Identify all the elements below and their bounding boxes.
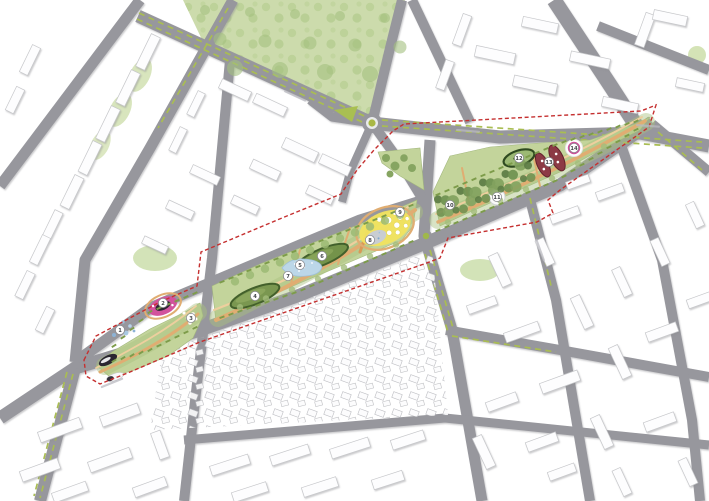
building <box>549 206 580 225</box>
tree <box>511 181 522 192</box>
building <box>29 235 50 266</box>
feature-marker: 14 <box>569 143 578 152</box>
building <box>643 412 676 432</box>
tree <box>351 228 359 236</box>
svg-text:4: 4 <box>253 294 257 300</box>
tree <box>408 164 416 172</box>
building <box>485 392 518 412</box>
svg-text:12: 12 <box>515 156 523 162</box>
svg-text:9: 9 <box>398 210 402 216</box>
building <box>60 175 84 210</box>
hedge <box>111 344 116 348</box>
park-tree <box>290 9 300 19</box>
feature-marker: 6 <box>317 251 326 260</box>
feature-marker: 12 <box>514 153 523 162</box>
building <box>51 481 88 501</box>
building <box>652 10 687 27</box>
masterplan-canvas: 1234567891011121314 <box>0 0 709 501</box>
building <box>570 294 593 329</box>
feature-marker: 3 <box>186 313 195 322</box>
building <box>685 201 704 228</box>
svg-text:11: 11 <box>493 195 501 201</box>
park-tree <box>362 66 378 82</box>
building <box>329 437 370 459</box>
feature-marker: 4 <box>250 291 259 300</box>
feature-marker: 1 <box>115 325 124 334</box>
building <box>521 16 558 33</box>
tree <box>482 194 491 203</box>
feature-marker: 2 <box>158 298 167 307</box>
svg-text:7: 7 <box>286 274 290 280</box>
tree <box>391 162 400 171</box>
tree <box>237 304 243 310</box>
feature-marker: 7 <box>283 271 292 280</box>
building <box>474 45 515 64</box>
building <box>35 306 54 333</box>
building <box>371 470 405 489</box>
feature-marker: 10 <box>445 200 454 209</box>
building <box>512 75 557 95</box>
park-tree <box>394 41 407 54</box>
building <box>466 296 497 315</box>
park-tree <box>380 13 390 23</box>
park-tree <box>214 33 227 46</box>
building <box>269 444 310 466</box>
building <box>452 13 471 46</box>
tree <box>459 204 468 213</box>
tree <box>508 170 518 180</box>
tree <box>367 253 373 259</box>
park-tree <box>227 60 243 76</box>
svg-text:3: 3 <box>189 316 193 322</box>
building <box>281 137 318 162</box>
feature-marker: 8 <box>365 235 374 244</box>
building <box>187 91 206 118</box>
building <box>209 454 250 476</box>
feature-marker: 5 <box>295 260 304 269</box>
building <box>230 195 259 215</box>
building <box>301 477 338 498</box>
building <box>390 430 425 450</box>
road <box>342 123 372 202</box>
building <box>15 270 35 299</box>
building <box>305 185 334 205</box>
feature-marker: 11 <box>492 192 501 201</box>
tree <box>261 265 269 273</box>
svg-text:14: 14 <box>570 146 578 152</box>
building <box>525 432 558 452</box>
building <box>249 159 280 181</box>
building <box>19 45 40 76</box>
building <box>132 476 167 497</box>
road <box>622 148 700 501</box>
building <box>686 291 709 308</box>
building <box>165 200 194 220</box>
tree <box>498 186 505 193</box>
building <box>675 78 704 93</box>
tree <box>520 175 527 182</box>
tree <box>527 173 536 182</box>
park-tree <box>349 39 362 52</box>
park-tree <box>245 7 255 17</box>
building <box>99 403 140 427</box>
building <box>231 482 268 501</box>
building <box>612 467 632 496</box>
tree <box>393 241 399 247</box>
building <box>595 183 624 201</box>
feature-marker: 9 <box>395 207 404 216</box>
building <box>547 463 576 481</box>
building <box>318 154 351 177</box>
building <box>169 127 188 154</box>
svg-text:1: 1 <box>118 328 122 334</box>
road <box>446 330 709 377</box>
tree <box>387 171 394 178</box>
tree <box>475 196 482 203</box>
park-tree <box>304 37 317 50</box>
main-roundabout <box>368 119 375 126</box>
feature-marker: 13 <box>544 157 553 166</box>
tree <box>471 208 477 214</box>
tree <box>524 161 532 169</box>
svg-text:2: 2 <box>161 301 165 307</box>
park-tree <box>259 35 272 48</box>
hedge <box>120 335 125 339</box>
masterplan-map: 1234567891011121314 <box>0 0 709 501</box>
svg-text:6: 6 <box>320 254 324 260</box>
small-roundabout <box>423 233 429 239</box>
tree <box>306 246 314 254</box>
park-tree <box>200 5 210 15</box>
svg-text:10: 10 <box>446 203 454 209</box>
building <box>87 447 132 472</box>
svg-text:13: 13 <box>545 160 553 166</box>
tree <box>400 154 408 162</box>
park-tree <box>317 64 333 80</box>
tree <box>382 154 390 162</box>
park-tree <box>335 11 345 21</box>
svg-text:8: 8 <box>368 238 372 244</box>
tree <box>601 143 607 149</box>
building <box>612 267 633 298</box>
building <box>151 430 170 460</box>
building <box>5 86 24 113</box>
tree <box>445 219 451 225</box>
building <box>650 237 670 266</box>
park-tree <box>272 62 288 78</box>
building <box>252 93 287 116</box>
svg-text:5: 5 <box>298 263 302 269</box>
